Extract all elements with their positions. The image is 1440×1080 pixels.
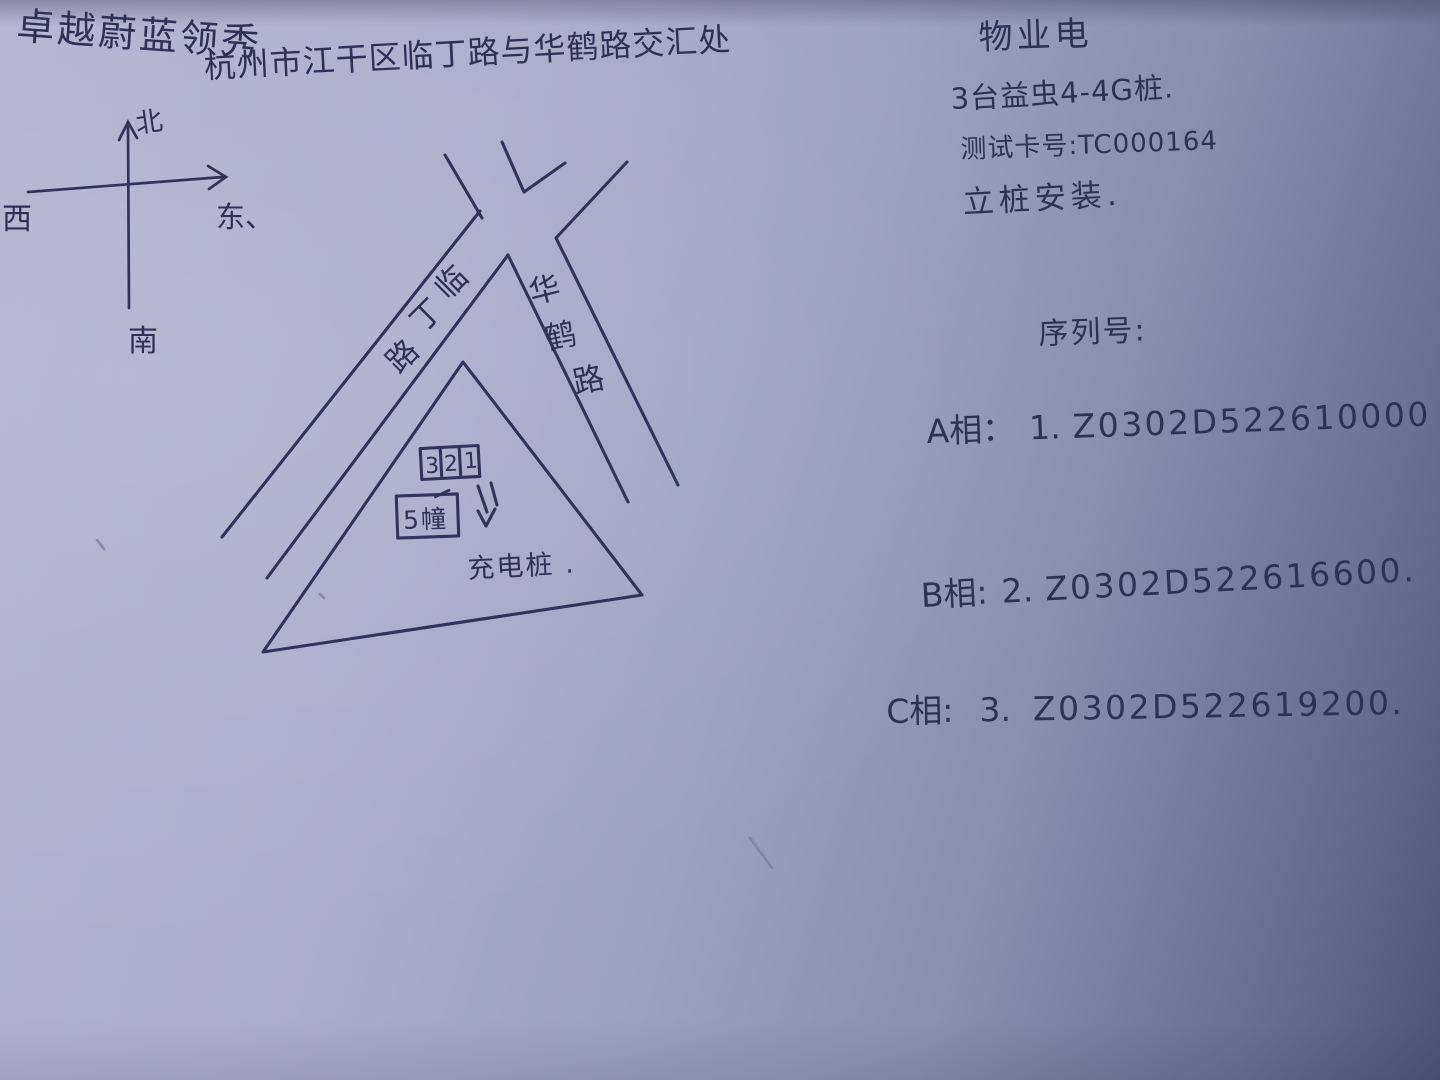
units-box-cell-2: 2	[443, 452, 458, 478]
phase-c-label: C相:	[886, 691, 954, 731]
left-road-se-edge-northeast	[556, 162, 627, 238]
units-box-cell-1: 1	[463, 449, 478, 475]
left-road-se-edge	[267, 255, 508, 578]
phase-a-index: 1.	[1028, 407, 1061, 447]
right-road-name-char-3: 路	[570, 360, 608, 402]
note-install: 立桩安装.	[962, 178, 1122, 220]
phase-b-index: 2.	[1001, 570, 1034, 611]
sketch-layer: 北 西 东、 南 临 丁 路 华 鹤 路	[0, 0, 1440, 1080]
compass-east-label: 东、	[216, 200, 274, 234]
building-box-label: 5幢	[403, 504, 449, 535]
left-road-nw-edge-northeast	[524, 163, 565, 192]
compass-west-label: 西	[2, 202, 32, 237]
charging-arrow-stroke-1	[478, 486, 487, 512]
stray-mark-2	[750, 838, 772, 868]
units-box-cell-3: 3	[425, 454, 440, 480]
right-road-e-edge-south	[556, 238, 678, 485]
left-road-nw-edge	[222, 211, 480, 537]
phase-a-label: A相：	[926, 409, 1016, 451]
compass-north-label: 北	[134, 105, 165, 139]
units-box-divider-1	[440, 447, 442, 478]
compass-south-label: 南	[128, 324, 158, 359]
photo-paper: 北 西 东、 南 临 丁 路 华 鹤 路	[0, 0, 1440, 1080]
phase-c-serial: Z0302D522619200.	[1033, 683, 1405, 728]
right-road-w-edge-north	[445, 155, 482, 218]
stray-mark-1	[97, 540, 104, 549]
right-road-name-char-2: 鹤	[542, 316, 580, 358]
roads: 临 丁 路 华 鹤 路	[222, 142, 678, 578]
serial-number-heading: 序列号:	[1038, 314, 1147, 351]
stray-mark-3	[320, 594, 324, 598]
building-box: 5幢	[396, 490, 459, 538]
units-box: 3 2 1	[420, 446, 480, 480]
charging-arrow-stroke-2	[491, 483, 497, 505]
right-road-w-edge-south	[508, 255, 628, 502]
charging-pile-label: 充电桩 .	[467, 548, 577, 585]
compass-east-axis	[28, 177, 223, 192]
units-box-divider-2	[459, 446, 461, 477]
compass-north-axis	[128, 127, 129, 308]
note-property-electric: 物业电	[978, 16, 1093, 57]
right-road-e-edge-north	[502, 142, 524, 192]
phase-b-label: B相:	[920, 573, 989, 615]
phase-c-index: 3.	[979, 690, 1011, 730]
charging-arrow-icon	[478, 483, 497, 526]
compass: 北 西 东、 南	[2, 105, 274, 359]
